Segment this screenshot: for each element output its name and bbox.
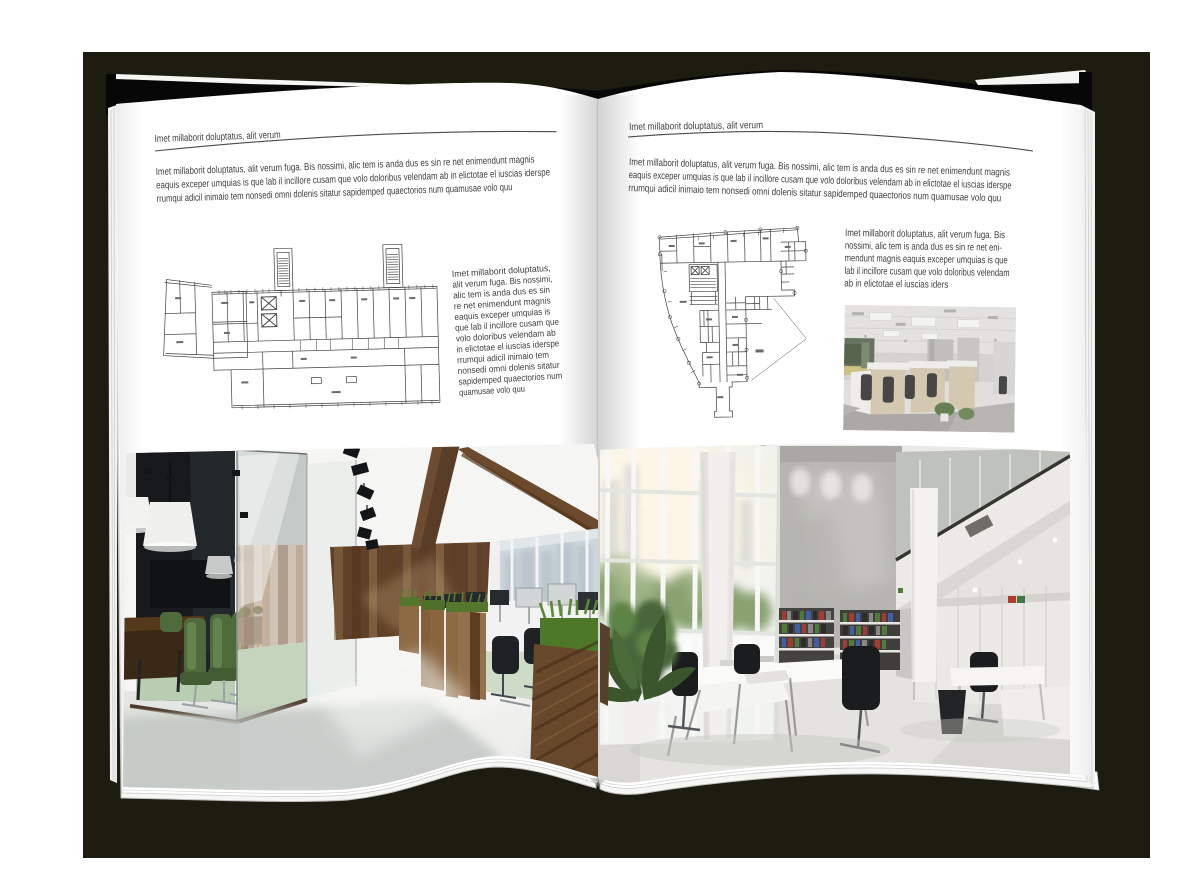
svg-text:nossimi, alic tem is anda dus: nossimi, alic tem is anda dus es sin re …	[845, 241, 1002, 254]
svg-text:Imet millaborit doluptatus, al: Imet millaborit doluptatus, alit verum	[629, 120, 763, 133]
svg-text:lab il incillore cusam que vol: lab il incillore cusam que volo doloribu…	[844, 266, 1009, 279]
svg-text:mendunt magnis eaquis exceper: mendunt magnis eaquis exceper umquias is…	[845, 253, 1008, 266]
svg-text:ab in elictotae el iuscias ide: ab in elictotae el iuscias iders	[844, 278, 948, 290]
svg-text:Imet millaborit doluptatus, al: Imet millaborit doluptatus, alit verum f…	[845, 228, 1005, 241]
